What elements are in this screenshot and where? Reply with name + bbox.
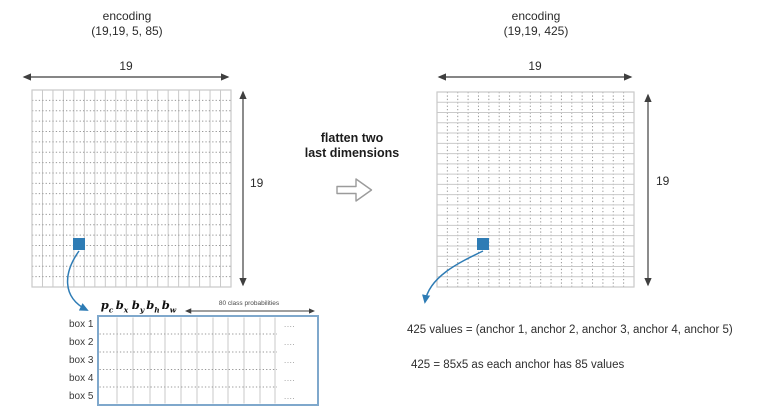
row-ellipsis-1: .... xyxy=(284,320,306,329)
class-prob-label: 80 class probabilities xyxy=(194,300,304,307)
feature-grid-right xyxy=(437,92,634,287)
highlighted-cell-right xyxy=(477,238,489,250)
values-note: 425 = 85x5 as each anchor has 85 values xyxy=(411,359,624,371)
highlighted-cell-left xyxy=(73,238,85,250)
encoding-flatten-diagram: encoding (19,19, 5, 85) encoding (19,19,… xyxy=(0,0,783,410)
anchors-note: 425 values = (anchor 1, anchor 2, anchor… xyxy=(407,324,733,336)
left-dim-top-label: 19 xyxy=(86,59,166,73)
row-ellipsis-5: .... xyxy=(284,392,306,401)
left-title-line2: (19,19, 5, 85) xyxy=(47,24,207,39)
row-label-box1: box 1 xyxy=(69,319,99,330)
right-dim-top-label: 19 xyxy=(495,59,575,73)
row-label-box2: box 2 xyxy=(69,337,99,348)
right-title-line2: (19,19, 425) xyxy=(456,24,616,39)
left-dim-side-label: 19 xyxy=(250,176,263,190)
row-ellipsis-4: .... xyxy=(284,374,306,383)
row-ellipsis-3: .... xyxy=(284,356,306,365)
flatten-arrow-icon xyxy=(337,179,372,201)
row-label-box5: box 5 xyxy=(69,391,99,402)
box-table-gridlines xyxy=(100,318,278,404)
right-title-line1: encoding xyxy=(456,9,616,24)
flatten-label-line2: last dimensions xyxy=(286,146,418,161)
row-ellipsis-2: .... xyxy=(284,338,306,347)
right-encoding-title: encoding (19,19, 425) xyxy=(456,9,616,39)
row-label-box3: box 3 xyxy=(69,355,99,366)
flatten-label: flatten two last dimensions xyxy=(286,131,418,161)
feature-grid-left xyxy=(32,90,231,287)
header-bw: bw xyxy=(160,298,178,314)
row-label-box4: box 4 xyxy=(69,373,99,384)
right-dim-side-label: 19 xyxy=(656,174,669,188)
left-title-line1: encoding xyxy=(47,9,207,24)
flatten-label-line1: flatten two xyxy=(286,131,418,146)
left-encoding-title: encoding (19,19, 5, 85) xyxy=(47,9,207,39)
